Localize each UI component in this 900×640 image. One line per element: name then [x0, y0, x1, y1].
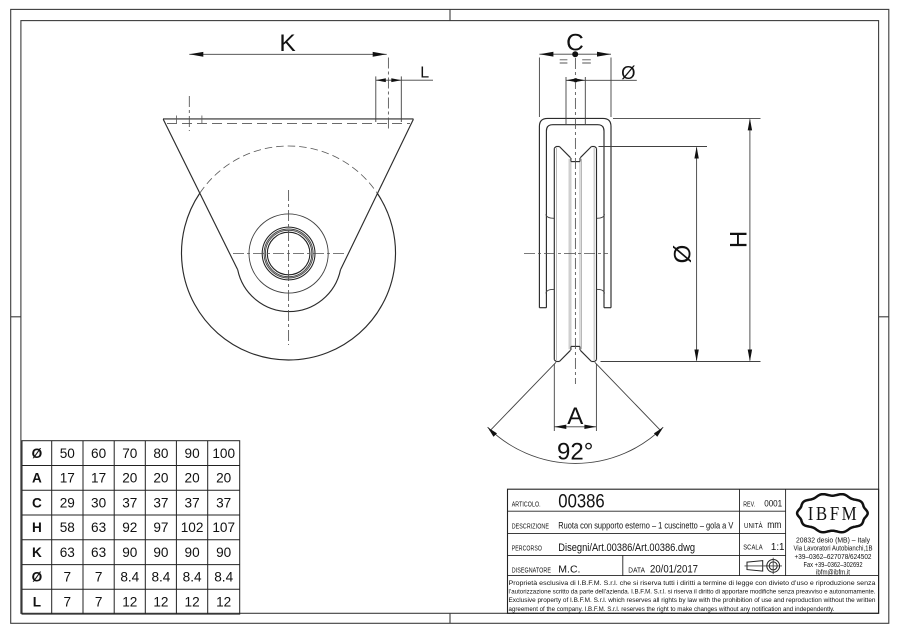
- svg-text:100: 100: [212, 446, 235, 461]
- svg-text:29: 29: [60, 495, 75, 510]
- svg-text:90: 90: [216, 545, 232, 560]
- svg-text:K: K: [279, 30, 296, 57]
- svg-text:00386: 00386: [558, 491, 604, 513]
- svg-text:90: 90: [185, 545, 201, 560]
- svg-text:A: A: [32, 471, 42, 486]
- svg-text:80: 80: [153, 446, 169, 461]
- svg-text:1:1: 1:1: [771, 542, 785, 553]
- svg-text:A: A: [567, 403, 583, 430]
- svg-text:8.4: 8.4: [151, 570, 170, 585]
- svg-text:Disegni/Art.00386/Art.00386.dw: Disegni/Art.00386/Art.00386.dwg: [558, 542, 695, 554]
- svg-text:DATA: DATA: [628, 565, 645, 574]
- svg-text:90: 90: [122, 545, 138, 560]
- svg-text:mm: mm: [767, 520, 781, 531]
- svg-text:97: 97: [153, 520, 168, 535]
- svg-text:70: 70: [122, 446, 138, 461]
- svg-text:H: H: [32, 520, 42, 535]
- svg-text:C: C: [566, 29, 584, 56]
- svg-text:7: 7: [64, 570, 72, 585]
- svg-text:20: 20: [122, 471, 138, 486]
- svg-text:37: 37: [122, 495, 137, 510]
- svg-text:12: 12: [122, 595, 137, 610]
- svg-text:SCALA: SCALA: [743, 543, 763, 552]
- svg-text:63: 63: [91, 520, 106, 535]
- svg-text:Fax +39–0362–302692: Fax +39–0362–302692: [804, 562, 863, 569]
- svg-text:20/01/2017: 20/01/2017: [650, 564, 698, 576]
- svg-text:63: 63: [91, 545, 106, 560]
- svg-text:Proprietà esclusiva di I.B.F.M: Proprietà esclusiva di I.B.F.M. S.r.l. c…: [509, 581, 877, 587]
- svg-text:IBFM: IBFM: [808, 503, 860, 525]
- svg-text:107: 107: [212, 520, 235, 535]
- svg-text:L: L: [33, 595, 41, 610]
- svg-text:Ø: Ø: [621, 62, 635, 83]
- svg-text:20: 20: [153, 471, 169, 486]
- svg-text:Ø: Ø: [670, 245, 697, 264]
- svg-text:Ø: Ø: [32, 570, 43, 585]
- svg-text:58: 58: [60, 520, 75, 535]
- svg-text:ibfm@ibfm.it: ibfm@ibfm.it: [816, 570, 850, 577]
- svg-text:92: 92: [122, 520, 137, 535]
- svg-text:7: 7: [95, 595, 103, 610]
- svg-text:37: 37: [185, 495, 200, 510]
- svg-text:90: 90: [153, 545, 169, 560]
- svg-text:8.4: 8.4: [183, 570, 202, 585]
- svg-text:K: K: [32, 545, 42, 560]
- svg-text:20: 20: [185, 471, 201, 486]
- svg-text:Exclusive property of I.B.F.M.: Exclusive property of I.B.F.M. S.r.l. wh…: [509, 598, 876, 604]
- svg-text:20: 20: [216, 471, 232, 486]
- svg-text:20832 desio (MB) – Italy: 20832 desio (MB) – Italy: [796, 537, 871, 544]
- svg-text:37: 37: [153, 495, 168, 510]
- svg-text:63: 63: [60, 545, 75, 560]
- svg-text:8.4: 8.4: [120, 570, 139, 585]
- svg-text:17: 17: [91, 471, 106, 486]
- svg-text:Via Lavoratori Autobianchi,1B: Via Lavoratori Autobianchi,1B: [794, 546, 873, 553]
- svg-text:50: 50: [60, 446, 76, 461]
- svg-text:30: 30: [91, 495, 107, 510]
- svg-text:0001: 0001: [764, 499, 782, 510]
- svg-text:l’autorizzazione scritto da pa: l’autorizzazione scritto da parte dell’a…: [509, 590, 876, 596]
- svg-text:12: 12: [153, 595, 168, 610]
- svg-text:M.C.: M.C.: [558, 563, 580, 575]
- svg-text:7: 7: [64, 595, 72, 610]
- svg-text:7: 7: [95, 570, 103, 585]
- svg-text:DISEGNATORE: DISEGNATORE: [512, 565, 551, 574]
- svg-text:12: 12: [185, 595, 200, 610]
- svg-text:37: 37: [216, 495, 231, 510]
- svg-text:92°: 92°: [557, 439, 593, 466]
- svg-text:UNITÀ: UNITÀ: [744, 521, 763, 530]
- svg-text:17: 17: [60, 471, 75, 486]
- svg-text:Ruota con supporto esterno – 1: Ruota con supporto esterno – 1 cuscinett…: [558, 521, 733, 531]
- svg-text:102: 102: [181, 520, 204, 535]
- svg-text:PERCORSO: PERCORSO: [512, 544, 543, 553]
- svg-text:+39–0362–627078/624502: +39–0362–627078/624502: [795, 554, 872, 561]
- svg-text:DESCRIZIONE: DESCRIZIONE: [512, 522, 549, 531]
- svg-text:8.4: 8.4: [214, 570, 233, 585]
- svg-text:ARTICOLO.: ARTICOLO.: [512, 500, 541, 509]
- svg-text:agreement of the company. I.B.: agreement of the company. I.B.F.M. S.r.l…: [509, 607, 835, 613]
- svg-text:H: H: [726, 231, 753, 248]
- svg-text:Ø: Ø: [32, 446, 43, 461]
- svg-text:REV.: REV.: [743, 499, 755, 508]
- svg-text:90: 90: [185, 446, 201, 461]
- svg-text:C: C: [32, 495, 42, 510]
- svg-text:60: 60: [91, 446, 107, 461]
- svg-text:12: 12: [216, 595, 231, 610]
- svg-text:L: L: [420, 65, 429, 82]
